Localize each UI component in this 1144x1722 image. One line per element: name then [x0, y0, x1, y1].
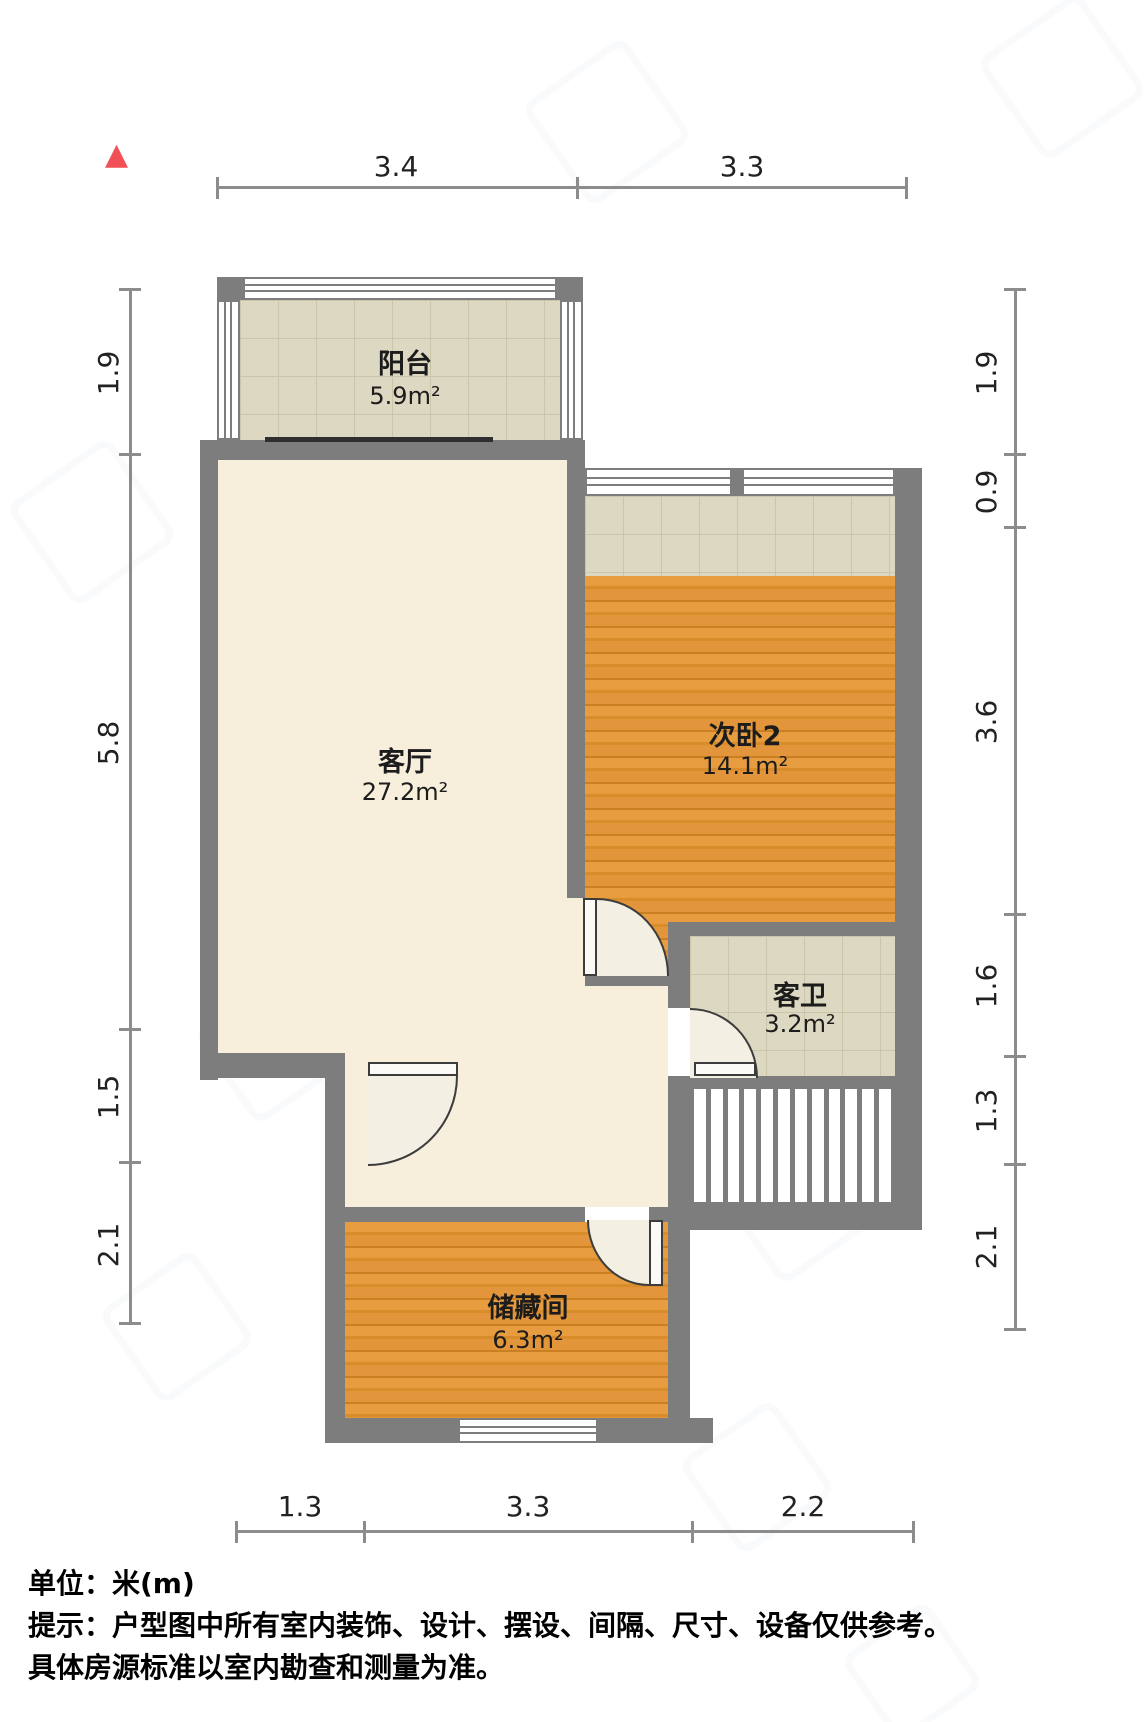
room-area-bathroom: 3.2m² [700, 1010, 900, 1038]
bay-window-floor [585, 496, 895, 576]
wall-living-bedroom [567, 440, 585, 898]
stair-tread [694, 1089, 706, 1202]
stair-tread [778, 1089, 790, 1202]
dim-tick [1004, 913, 1026, 916]
room-area-living: 27.2m² [305, 778, 505, 806]
dim-tick [1004, 1328, 1026, 1331]
wall-hallway-storage [325, 1207, 585, 1222]
stair-tread [879, 1089, 891, 1202]
watermark [521, 36, 694, 209]
dim-tick [1004, 453, 1026, 456]
north-arrow-icon: ▲ [105, 140, 128, 170]
stair-tread [829, 1089, 841, 1202]
bedroom-door-leaf [583, 898, 597, 976]
storage-window [458, 1418, 598, 1443]
dim-tick [1004, 1055, 1026, 1058]
stair-tread [862, 1089, 874, 1202]
entry-door-leaf [368, 1062, 458, 1076]
dim-tick [1004, 1163, 1026, 1166]
wall-bathroom-left [668, 936, 690, 1008]
dim-tick [1004, 288, 1026, 291]
stair-tread [711, 1089, 723, 1202]
wall-entry [200, 1053, 345, 1078]
dim-line-bottom [236, 1530, 915, 1533]
dim-label-left-1: 1.9 [92, 333, 122, 413]
balcony-sliding-door [265, 437, 493, 442]
stair-tread [845, 1089, 857, 1202]
dim-tick [119, 1161, 141, 1164]
disclaimer-line1: 提示：户型图中所有室内装饰、设计、摆设、间隔、尺寸、设备仅供参考。 [28, 1604, 952, 1644]
wall-right-outer [895, 468, 922, 1230]
stair-tread [728, 1089, 740, 1202]
dim-label-right-5: 1.3 [970, 1071, 1000, 1151]
dim-label-left-3: 1.5 [92, 1057, 122, 1137]
dim-tick [905, 177, 908, 199]
wall-balcony-living [200, 440, 585, 460]
stair-tread [761, 1089, 773, 1202]
dim-label-right-4: 1.6 [970, 946, 1000, 1026]
balcony-window-right [560, 300, 583, 440]
dim-tick [576, 177, 579, 199]
window-mullion [730, 468, 744, 496]
room-label-bedroom2: 次卧2 [645, 714, 845, 753]
dim-tick [235, 1521, 238, 1543]
wall-hallway-right [668, 1080, 690, 1443]
bathroom-door-leaf [694, 1062, 756, 1076]
dim-tick [119, 288, 141, 291]
wall-storage-left [325, 1053, 345, 1443]
dim-tick [363, 1521, 366, 1543]
room-area-storage: 6.3m² [428, 1326, 628, 1354]
dim-label-right-6: 2.1 [970, 1207, 1000, 1287]
dim-label-top-2: 3.3 [692, 150, 792, 183]
balcony-window-left [217, 300, 240, 440]
unit-note: 单位：米(m) [28, 1562, 195, 1602]
dim-tick [119, 1322, 141, 1325]
dim-label-right-1: 1.9 [970, 333, 1000, 413]
dim-label-bottom-1: 1.3 [250, 1490, 350, 1523]
dim-tick [912, 1521, 915, 1543]
stair-tread [812, 1089, 824, 1202]
dim-line-left [129, 289, 132, 1325]
dim-label-right-3: 3.6 [970, 682, 1000, 762]
disclaimer-line2: 具体房源标准以室内勘查和测量为准。 [28, 1646, 504, 1686]
dim-line-top [217, 186, 908, 189]
dim-label-top-1: 3.4 [346, 150, 446, 183]
dim-tick [691, 1521, 694, 1543]
balcony-window-top [243, 277, 557, 300]
room-label-bathroom: 客卫 [700, 974, 900, 1013]
room-area-balcony: 5.9m² [305, 382, 505, 410]
room-label-living: 客厅 [305, 740, 505, 779]
dim-label-bottom-3: 2.2 [753, 1490, 853, 1523]
room-area-bedroom2: 14.1m² [645, 752, 845, 780]
dim-tick [1004, 526, 1026, 529]
dim-label-right-2: 0.9 [970, 452, 1000, 532]
stair-tread [744, 1089, 756, 1202]
dim-tick [216, 177, 219, 199]
wall-bedroom-bathroom [668, 922, 895, 936]
watermark [976, 0, 1144, 163]
stair-tread [795, 1089, 807, 1202]
stairs [690, 1086, 895, 1205]
dim-label-left-4: 2.1 [92, 1205, 122, 1285]
wall-below-stairs [668, 1205, 922, 1230]
wall-left-outer [200, 440, 218, 1080]
dim-tick [119, 1028, 141, 1031]
storage-door-leaf [649, 1220, 663, 1286]
wall-post [217, 277, 243, 300]
room-label-storage: 储藏间 [428, 1286, 628, 1325]
dim-label-left-2: 5.8 [92, 703, 122, 783]
room-label-balcony: 阳台 [305, 342, 505, 381]
dim-tick [119, 453, 141, 456]
dim-label-bottom-2: 3.3 [478, 1490, 578, 1523]
floor-plan-page: ▲ 3.4 3.3 1.3 3.3 2.2 1.9 5.8 1.5 2.1 1.… [0, 0, 1144, 1722]
watermark [6, 436, 179, 609]
wall-post [557, 277, 583, 300]
dim-line-right [1014, 289, 1017, 1330]
